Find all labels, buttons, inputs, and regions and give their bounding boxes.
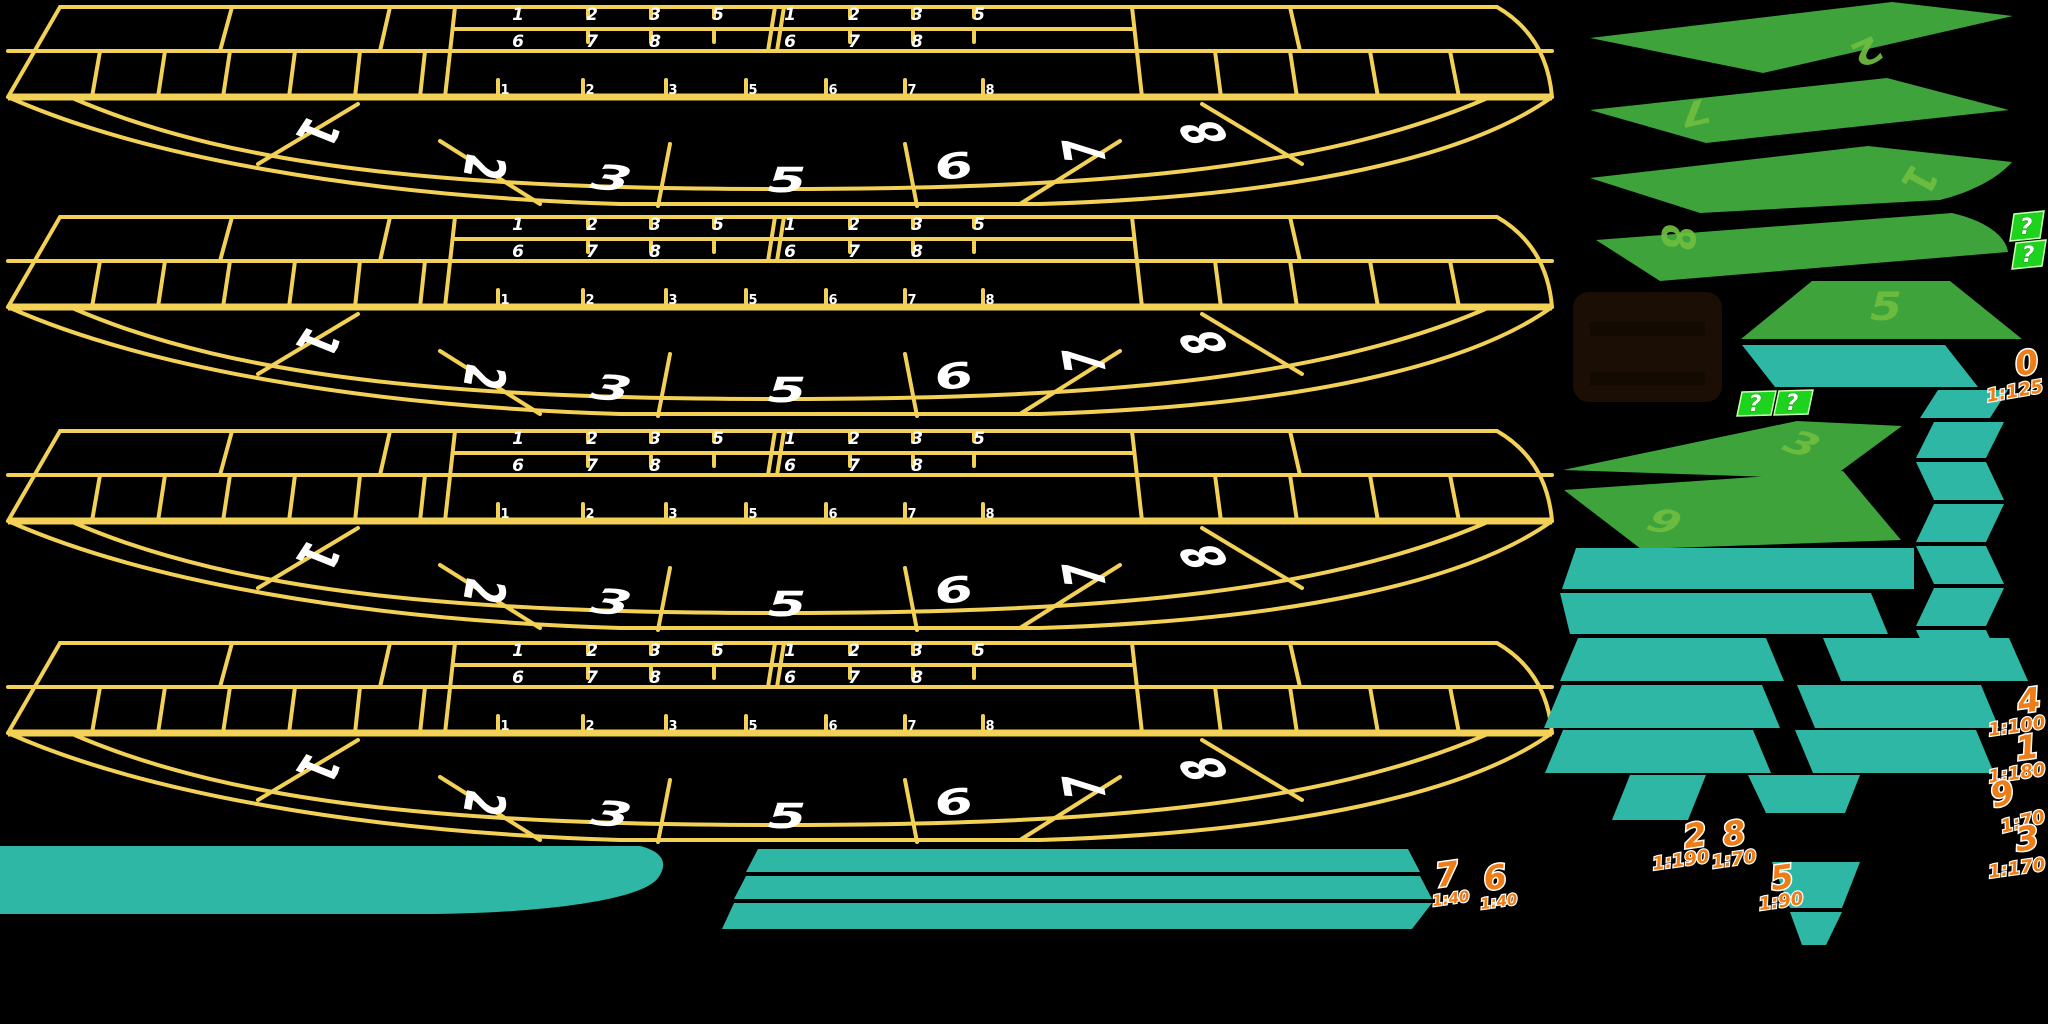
teal-bar (1544, 685, 1780, 728)
grid-number: 7 (848, 668, 860, 688)
teal-chevron (1916, 462, 2004, 500)
strip-number: 7 (907, 719, 916, 734)
teal-bar (1748, 775, 1860, 813)
odds-ratio: 1:90 (1757, 888, 1804, 915)
grid-number: 2 (586, 215, 598, 235)
strip-number: 1 (500, 719, 509, 734)
grid-number: 2 (848, 5, 860, 25)
teal-bar (722, 903, 1432, 929)
grid-number: 3 (649, 5, 661, 25)
strip-number: 8 (985, 293, 994, 308)
table-sprite-1: 1235678123567812356781235678 (8, 5, 1552, 206)
grid-number: 2 (586, 429, 598, 449)
strip-number: 2 (585, 507, 594, 522)
grid-number: 2 (586, 5, 598, 25)
sector-2-shape (1590, 2, 2013, 73)
strip-number: 1 (500, 83, 509, 98)
seat-number: 6 (929, 780, 979, 824)
grid-number: 8 (649, 668, 661, 688)
grid-number: 1 (784, 429, 796, 449)
table-sprite-3: 1235678123567812356781235678 (8, 429, 1552, 630)
grid-number: 3 (911, 215, 923, 235)
strip-number: 3 (668, 293, 677, 308)
grid-number: 7 (586, 32, 598, 52)
seat-number: 3 (587, 366, 637, 410)
strip-number: 5 (748, 293, 757, 308)
strip-number: 7 (907, 83, 916, 98)
grid-number: 5 (973, 641, 985, 661)
grid-number: 5 (973, 215, 985, 235)
grid-number: 5 (712, 641, 724, 661)
sector-3-shape (1563, 421, 1902, 479)
seat-number: 3 (587, 156, 637, 200)
grid-number: 8 (649, 456, 661, 476)
seat-number: 3 (587, 580, 637, 624)
seat-number: 2 (450, 153, 519, 181)
grid-number: 8 (911, 32, 923, 52)
grid-number: 6 (512, 242, 524, 262)
seat-number: 8 (1167, 538, 1242, 575)
grid-number: 6 (784, 668, 796, 688)
teal-bar (1545, 730, 1771, 773)
seat-number: 5 (768, 796, 807, 836)
mystery-tag-question: ? (2020, 215, 2033, 240)
strip-number: 2 (585, 293, 594, 308)
grid-number: 1 (784, 5, 796, 25)
grid-number: 8 (911, 668, 923, 688)
grid-number: 5 (973, 429, 985, 449)
teal-bar (1560, 593, 1888, 634)
strip-number: 3 (668, 83, 677, 98)
strip-number: 5 (748, 719, 757, 734)
grid-number: 2 (848, 429, 860, 449)
grid-number: 3 (911, 641, 923, 661)
seat-number: 5 (768, 370, 807, 410)
sector-8-number: 8 (1650, 224, 1705, 251)
grid-number: 3 (649, 215, 661, 235)
teal-bar (1795, 730, 1994, 773)
teal-chevron (1916, 588, 2004, 626)
strip-number: 6 (828, 293, 837, 308)
mystery-tag-question: ? (1786, 391, 1799, 416)
seat-number: 7 (1050, 561, 1119, 590)
grid-number: 2 (586, 641, 598, 661)
teal-bar (734, 876, 1432, 899)
strip-number: 3 (668, 507, 677, 522)
grid-number: 5 (712, 5, 724, 25)
seat-number: 5 (768, 160, 807, 200)
strip-number: 6 (828, 719, 837, 734)
grid-number: 7 (848, 32, 860, 52)
seat-number: 3 (587, 792, 637, 836)
odds-label-6: 6 1:40 (1479, 856, 1518, 913)
grid-number: 1 (512, 641, 524, 661)
sector-7-shape (1590, 78, 2009, 143)
strip-number: 7 (907, 507, 916, 522)
strip-number: 1 (500, 293, 509, 308)
seat-number: 6 (929, 568, 979, 612)
odds-label-0: 0 1:125 (1985, 341, 2045, 406)
grid-number: 2 (848, 215, 860, 235)
grid-number: 8 (649, 242, 661, 262)
strip-number: 3 (668, 719, 677, 734)
odds-label-8: 8 1:70 (1710, 812, 1757, 873)
strip-number: 8 (985, 507, 994, 522)
grid-number: 3 (911, 429, 923, 449)
seat-number: 2 (450, 577, 519, 605)
grid-number: 7 (586, 456, 598, 476)
odds-ratio: 1:40 (1431, 887, 1470, 910)
seat-number: 8 (1167, 750, 1242, 787)
grid-number: 6 (512, 456, 524, 476)
seat-number: 7 (1050, 347, 1119, 376)
sprite-sheet: 1235678123567812356781235678 12356781235… (0, 0, 2048, 1024)
grid-number: 6 (784, 32, 796, 52)
grid-number: 7 (586, 668, 598, 688)
teal-parallelogram (1742, 345, 1978, 387)
grid-number: 1 (512, 429, 524, 449)
grid-number: 1 (512, 5, 524, 25)
grid-number: 5 (712, 215, 724, 235)
strip-number: 6 (828, 507, 837, 522)
table-sprite-2: 1235678123567812356781235678 (8, 215, 1552, 416)
strip-number: 5 (748, 83, 757, 98)
grid-number: 8 (911, 242, 923, 262)
odds-ratio: 1:125 (1985, 376, 2045, 407)
seat-number: 2 (450, 363, 519, 391)
seat-number: 2 (450, 789, 519, 817)
grid-number: 3 (649, 641, 661, 661)
odds-label-2: 2 1:190 (1651, 814, 1711, 875)
strip-number: 2 (585, 83, 594, 98)
teal-bar (1560, 638, 1784, 681)
odds-label-7: 7 1:40 (1431, 853, 1470, 910)
strip-number: 8 (985, 719, 994, 734)
strip-number: 7 (907, 293, 916, 308)
teal-chevron (1790, 912, 1842, 945)
mystery-tag-question: ? (1749, 392, 1762, 417)
seat-number: 7 (1050, 137, 1119, 166)
grid-number: 2 (848, 641, 860, 661)
grid-number: 5 (973, 5, 985, 25)
grid-number: 1 (784, 215, 796, 235)
strip-number: 6 (828, 83, 837, 98)
strip-number: 5 (748, 507, 757, 522)
grid-number: 6 (784, 456, 796, 476)
grid-number: 1 (784, 641, 796, 661)
odds-ratio: 1:190 (1651, 846, 1711, 875)
teal-chevron (1916, 504, 2004, 542)
grid-number: 1 (512, 215, 524, 235)
sector-6-shape (1564, 471, 1901, 549)
teal-bar (1612, 775, 1706, 820)
seat-number: 7 (1050, 773, 1119, 802)
odds-ratio: 1:170 (1987, 854, 2047, 883)
grid-number: 6 (784, 242, 796, 262)
table-sprite-4: 1235678123567812356781235678 (8, 641, 1552, 842)
grid-number: 5 (712, 429, 724, 449)
teal-bar (1562, 548, 1914, 589)
odds-ratio: 1:40 (1479, 890, 1518, 913)
grid-number: 3 (911, 5, 923, 25)
grid-number: 8 (911, 456, 923, 476)
seat-number: 6 (929, 144, 979, 188)
strip-number: 2 (585, 719, 594, 734)
grid-number: 8 (649, 32, 661, 52)
strip-number: 1 (500, 507, 509, 522)
seat-number: 8 (1167, 324, 1242, 361)
teal-bar (1823, 638, 2028, 681)
dark-panel (1573, 292, 1722, 402)
grid-number: 7 (586, 242, 598, 262)
teal-bar (746, 849, 1420, 872)
teal-chevron (1916, 422, 2004, 458)
mystery-tag-question: ? (2022, 243, 2035, 268)
odds-ratio: 1:70 (1710, 846, 1757, 873)
grid-number: 3 (649, 429, 661, 449)
seat-number: 5 (768, 584, 807, 624)
strip-number: 8 (985, 83, 994, 98)
sector-5-number: 5 (1870, 284, 1902, 330)
seat-number: 6 (929, 354, 979, 398)
grid-number: 7 (848, 242, 860, 262)
teal-rail-bottom-left (0, 846, 663, 914)
grid-number: 7 (848, 456, 860, 476)
teal-bar (1797, 685, 1999, 728)
grid-number: 6 (512, 668, 524, 688)
grid-number: 6 (512, 32, 524, 52)
seat-number: 8 (1167, 114, 1242, 151)
teal-chevron (1916, 546, 2004, 584)
